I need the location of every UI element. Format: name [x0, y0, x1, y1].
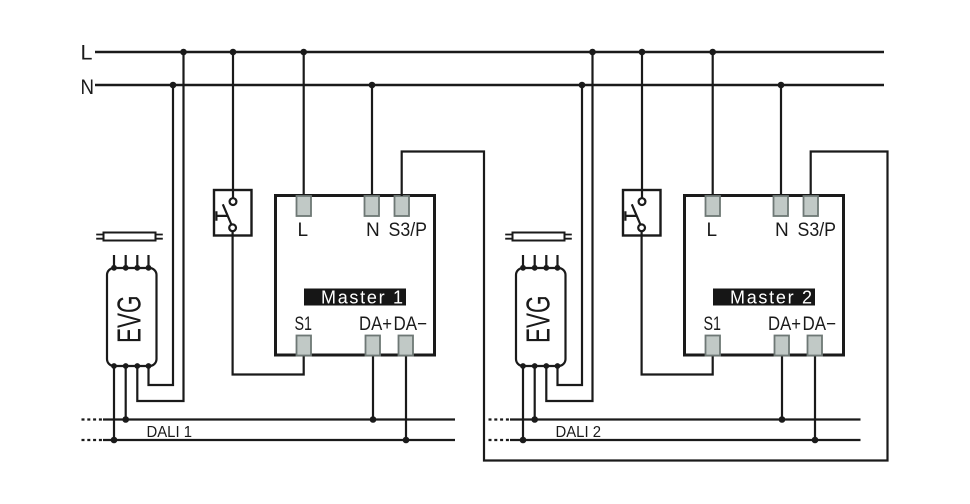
svg-text:L: L	[298, 220, 309, 241]
svg-text:S1: S1	[704, 314, 722, 335]
svg-text:EVG: EVG	[111, 296, 148, 344]
svg-text:DALI 2: DALI 2	[556, 424, 602, 441]
svg-text:EVG: EVG	[520, 296, 557, 344]
svg-text:N: N	[366, 220, 380, 241]
svg-text:S3/P: S3/P	[798, 220, 837, 241]
svg-text:S1: S1	[295, 314, 313, 335]
svg-text:S3/P: S3/P	[389, 220, 428, 241]
svg-text:DALI 1: DALI 1	[147, 424, 193, 441]
svg-text:L: L	[707, 220, 718, 241]
svg-text:DA+: DA+	[768, 314, 801, 335]
svg-text:N: N	[81, 75, 95, 99]
svg-text:DA−: DA−	[803, 314, 837, 335]
svg-text:N: N	[775, 220, 789, 241]
svg-text:Master 1: Master 1	[321, 287, 403, 307]
svg-text:L: L	[81, 41, 93, 65]
svg-text:DA+: DA+	[359, 314, 392, 335]
svg-text:Master 2: Master 2	[730, 287, 812, 307]
svg-text:DA−: DA−	[394, 314, 428, 335]
